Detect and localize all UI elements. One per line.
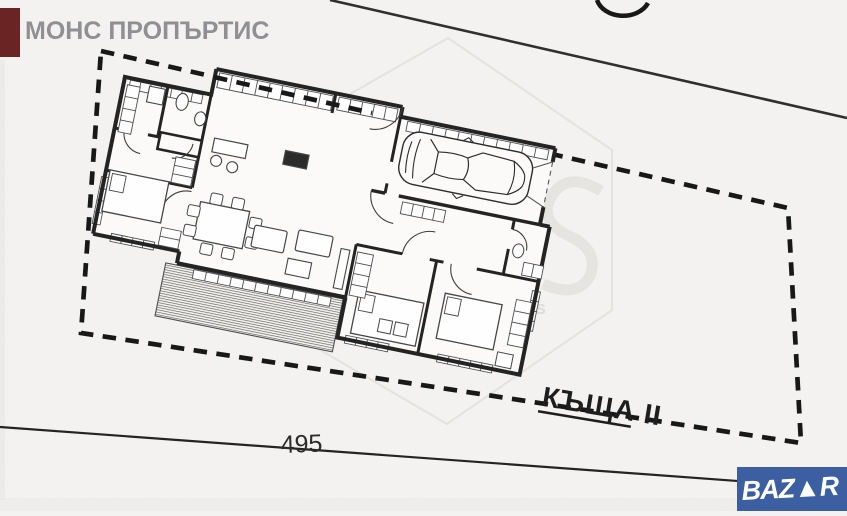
svg-text:BAZ▲R: BAZ▲R [741, 471, 841, 506]
